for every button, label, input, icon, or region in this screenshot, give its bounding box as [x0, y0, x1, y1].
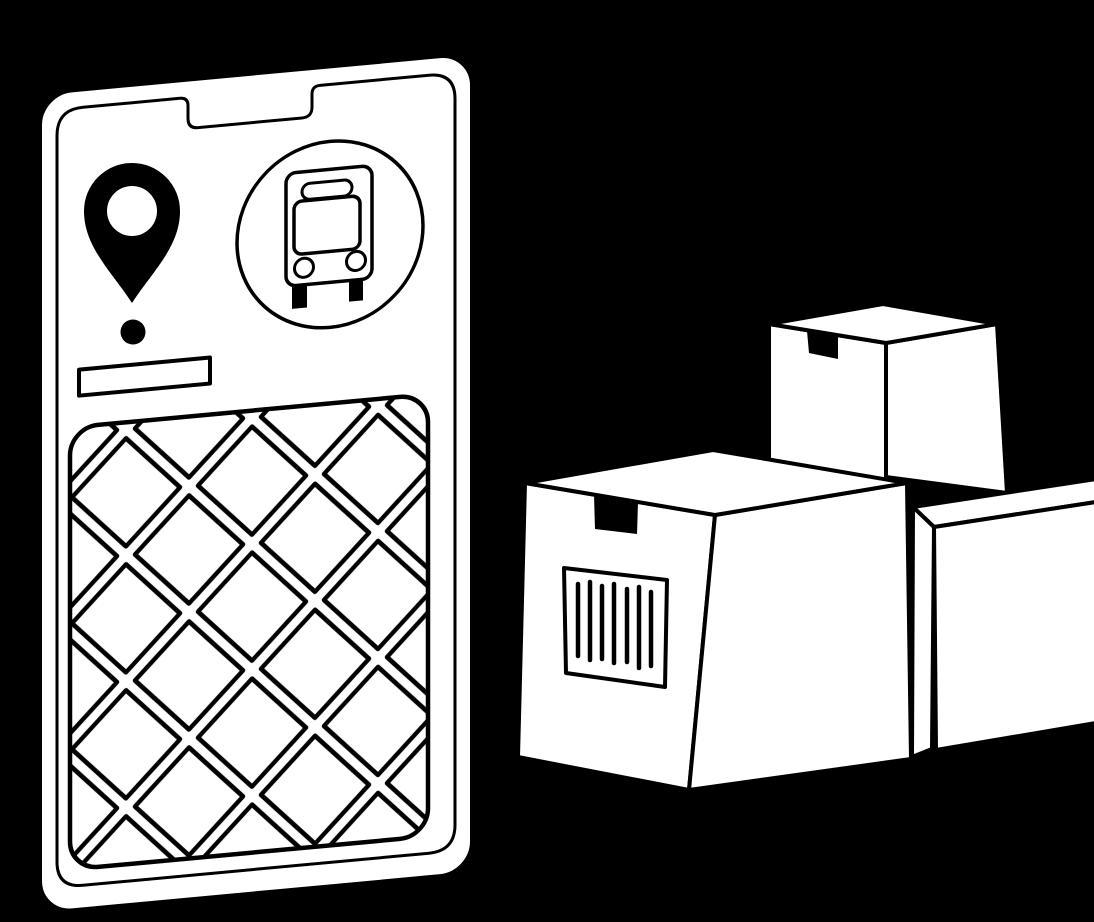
illustration-canvas — [0, 0, 1094, 922]
delivery-tracking-illustration — [0, 0, 1094, 922]
pin-hole — [107, 186, 157, 236]
front-box — [518, 450, 911, 790]
bus-left-wheel-leg — [292, 286, 307, 309]
right-box — [912, 479, 1094, 757]
bus-windshield — [294, 196, 360, 255]
back-box-right-face — [886, 324, 1007, 493]
bus-left-light — [295, 257, 314, 278]
bus-right-light — [347, 251, 366, 272]
street-map — [70, 394, 428, 869]
right-box-front-face — [934, 502, 1094, 750]
barcode-bars-icon — [578, 582, 651, 668]
front-box-right-face — [689, 483, 911, 790]
right-box-left-face — [912, 507, 934, 757]
pin-shadow-dot — [121, 320, 146, 345]
